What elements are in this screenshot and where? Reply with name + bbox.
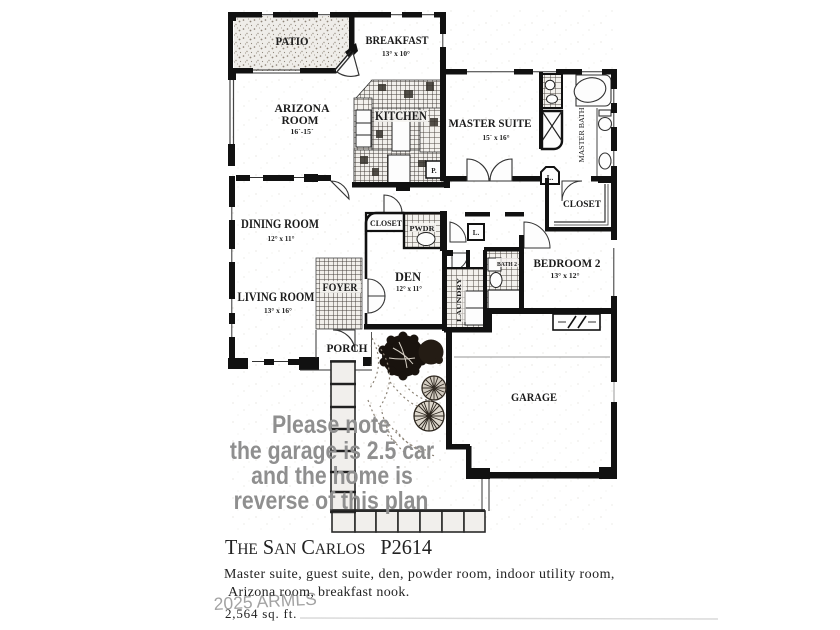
svg-text:the garage is 2.5 car: the garage is 2.5 car (230, 436, 434, 464)
svg-text:13° x 16°: 13° x 16° (264, 306, 292, 315)
svg-text:12° x 11°: 12° x 11° (268, 234, 295, 243)
svg-text:P.: P. (431, 167, 437, 175)
svg-text:DINING ROOM: DINING ROOM (241, 217, 319, 231)
svg-text:FOYER: FOYER (323, 282, 359, 294)
svg-text:16´-15´: 16´-15´ (291, 128, 315, 136)
svg-text:CLOSET: CLOSET (563, 199, 601, 209)
svg-text:13° x 12°: 13° x 12° (551, 271, 580, 280)
svg-text:PWDR: PWDR (410, 224, 436, 233)
svg-text:MASTER BATH: MASTER BATH (578, 108, 586, 163)
svg-text:LIVING ROOM: LIVING ROOM (238, 290, 315, 304)
svg-text:Please note: Please note (272, 410, 390, 438)
svg-text:reverse of this plan: reverse of this plan (234, 486, 429, 514)
svg-text:L.: L. (473, 229, 480, 237)
svg-text:BREAKFAST: BREAKFAST (366, 33, 429, 47)
svg-text:and the home is: and the home is (251, 461, 413, 489)
svg-text:GARAGE: GARAGE (511, 392, 557, 404)
svg-text:BEDROOM 2: BEDROOM 2 (534, 256, 601, 270)
svg-text:12° x 11°: 12° x 11° (396, 285, 422, 293)
svg-text:LAUNDRY: LAUNDRY (457, 277, 463, 322)
svg-text:MASTER SUITE: MASTER SUITE (449, 118, 532, 130)
svg-text:KITCHEN: KITCHEN (375, 109, 427, 123)
svg-text:BATH 2: BATH 2 (497, 261, 517, 268)
svg-text:Master suite, guest suite, den: Master suite, guest suite, den, powder r… (224, 567, 615, 582)
svg-text:CLOSET: CLOSET (370, 219, 403, 228)
svg-text:15´ x 16°: 15´ x 16° (483, 133, 510, 142)
svg-text:PORCH: PORCH (327, 341, 369, 355)
svg-text:PATIO: PATIO (276, 36, 309, 48)
svg-text:ROOM: ROOM (282, 113, 319, 127)
svg-text:13° x 10°: 13° x 10° (382, 49, 410, 58)
svg-text:DEN: DEN (395, 269, 422, 284)
